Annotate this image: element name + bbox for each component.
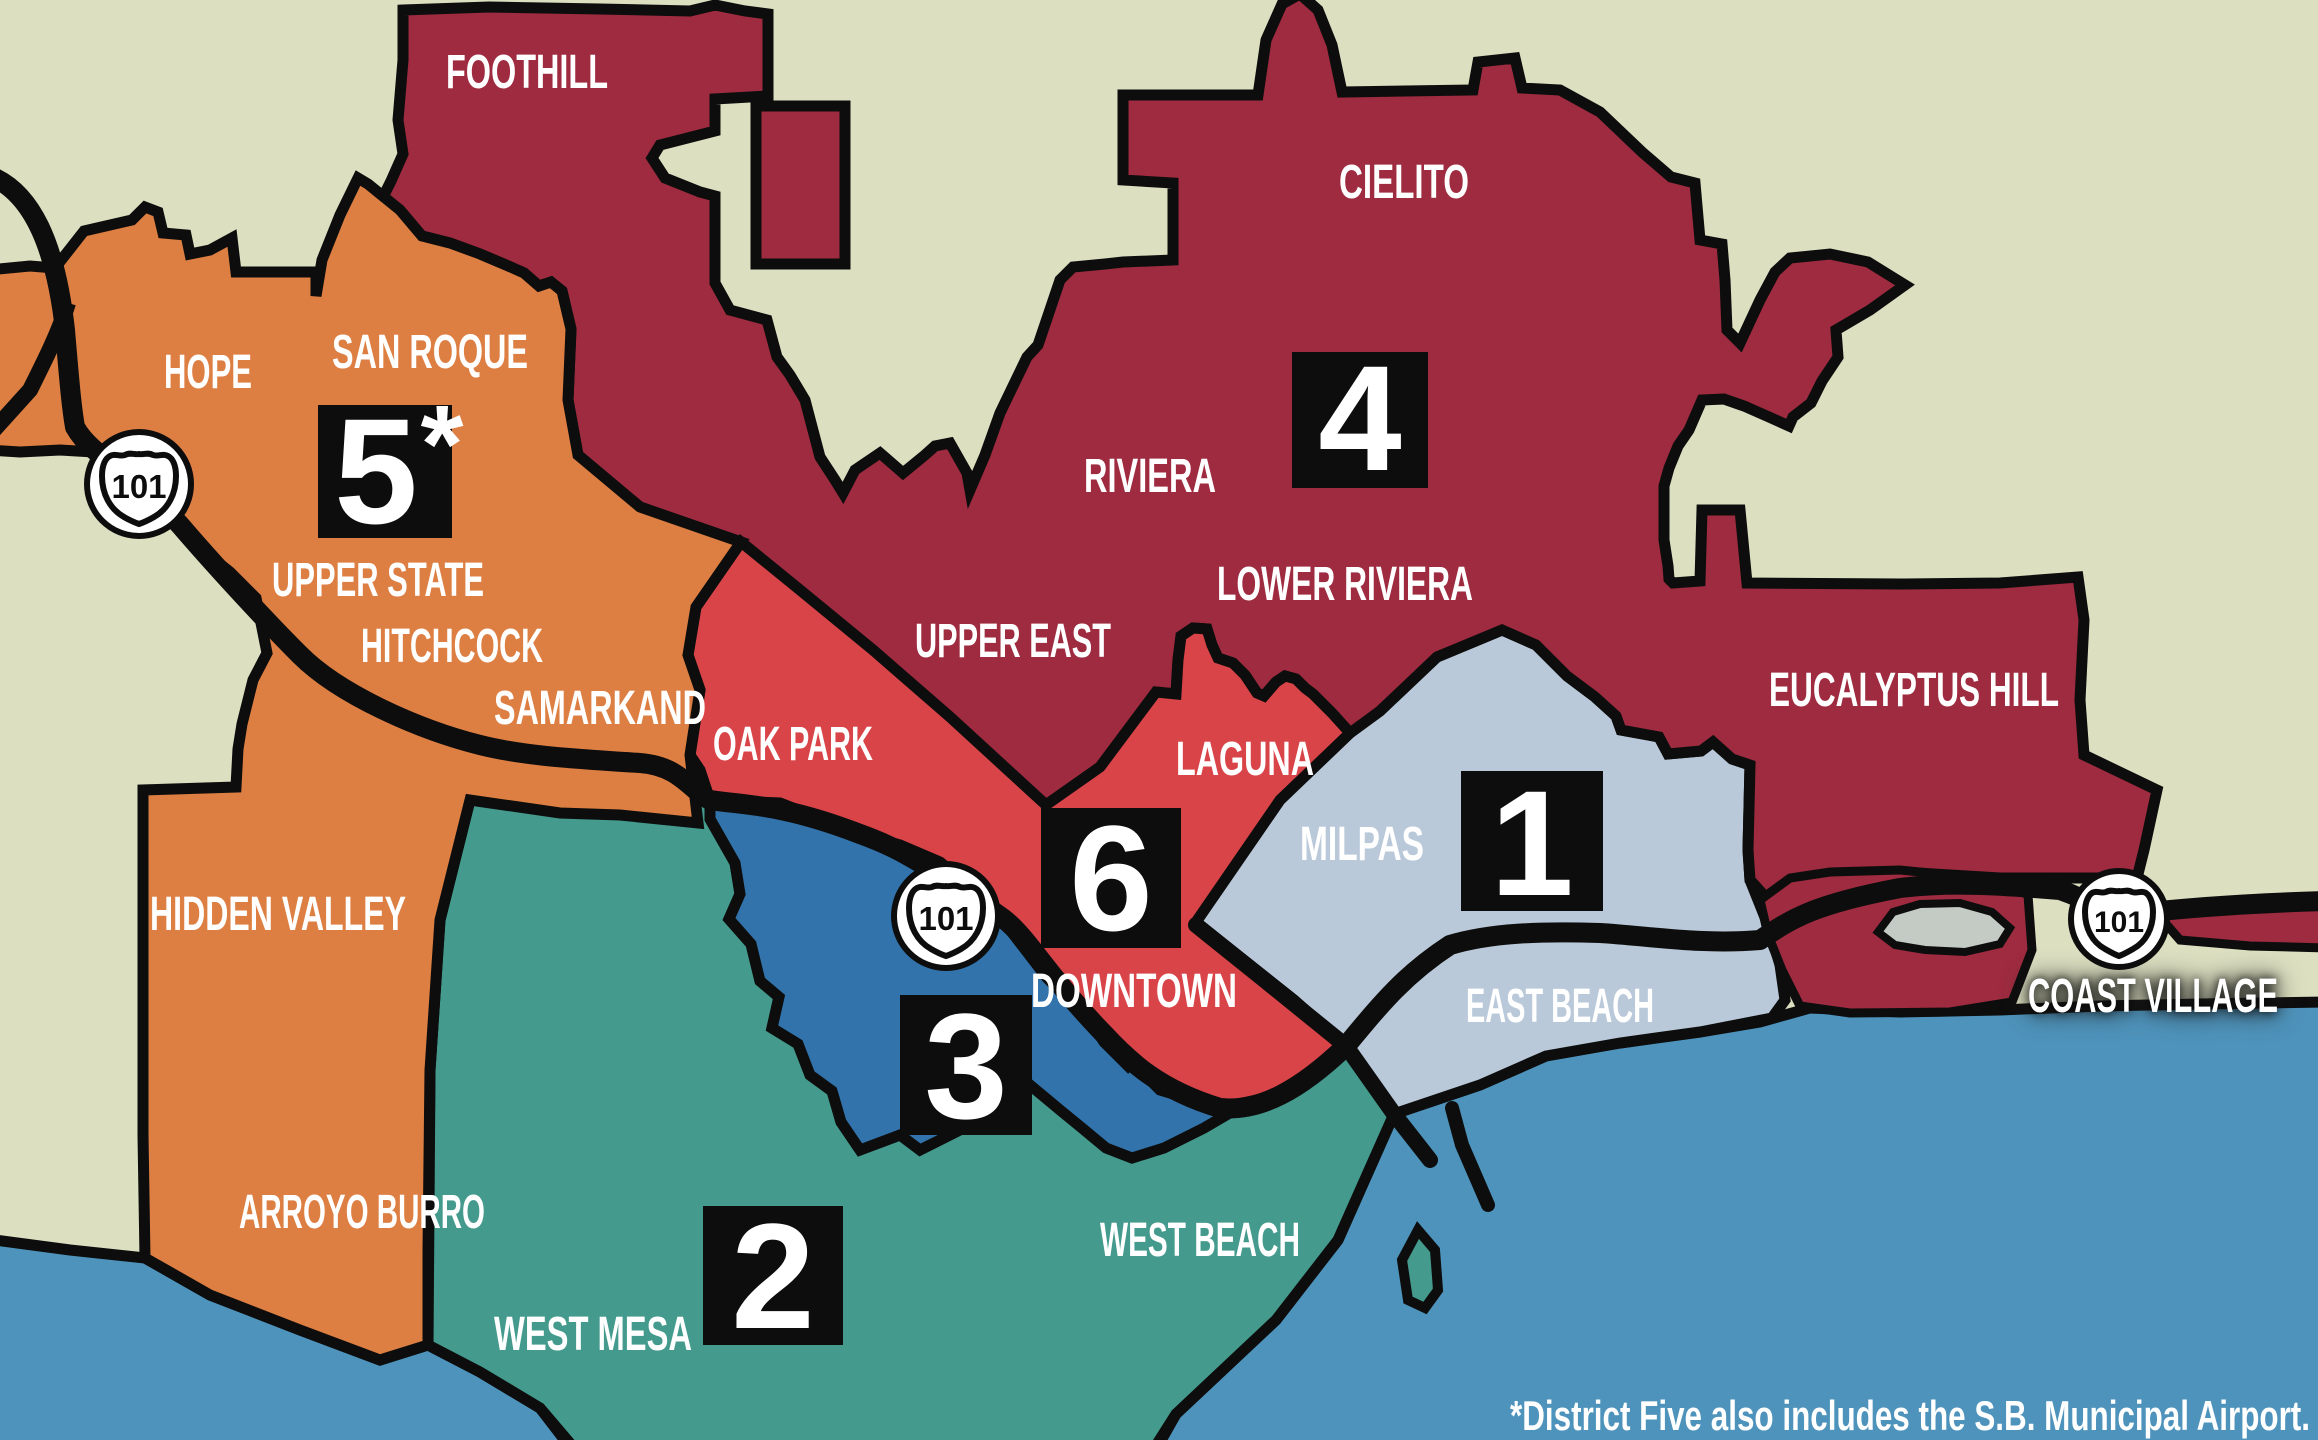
svg-text:101: 101 bbox=[918, 900, 973, 937]
svg-text:SAN ROQUE: SAN ROQUE bbox=[332, 326, 528, 379]
svg-text:LOWER RIVIERA: LOWER RIVIERA bbox=[1217, 558, 1473, 611]
svg-text:101: 101 bbox=[2094, 906, 2144, 939]
svg-text:1: 1 bbox=[1490, 759, 1573, 927]
svg-text:*: * bbox=[421, 383, 464, 506]
svg-text:5: 5 bbox=[334, 387, 417, 555]
svg-text:OAK PARK: OAK PARK bbox=[713, 718, 873, 771]
svg-text:HOPE: HOPE bbox=[164, 346, 252, 399]
svg-text:LAGUNA: LAGUNA bbox=[1176, 733, 1314, 786]
svg-text:HIDDEN VALLEY: HIDDEN VALLEY bbox=[150, 888, 406, 941]
svg-text:WEST MESA: WEST MESA bbox=[494, 1308, 692, 1361]
svg-text:101: 101 bbox=[111, 468, 166, 505]
svg-text:WEST BEACH: WEST BEACH bbox=[1100, 1214, 1300, 1267]
svg-text:MILPAS: MILPAS bbox=[1300, 818, 1424, 871]
svg-text:RIVIERA: RIVIERA bbox=[1084, 450, 1216, 503]
svg-text:UPPER STATE: UPPER STATE bbox=[272, 554, 484, 607]
svg-text:3: 3 bbox=[924, 982, 1007, 1150]
svg-text:EAST BEACH: EAST BEACH bbox=[1466, 980, 1654, 1033]
svg-text:*District Five also includes t: *District Five also includes the S.B. Mu… bbox=[1510, 1392, 2310, 1439]
svg-text:UPPER EAST: UPPER EAST bbox=[915, 615, 1111, 668]
svg-text:HITCHCOCK: HITCHCOCK bbox=[361, 620, 543, 673]
svg-text:6: 6 bbox=[1069, 794, 1152, 962]
svg-text:EUCALYPTUS HILL: EUCALYPTUS HILL bbox=[1769, 664, 2059, 717]
svg-text:SAMARKAND: SAMARKAND bbox=[494, 682, 706, 735]
svg-text:DOWNTOWN: DOWNTOWN bbox=[1031, 965, 1237, 1018]
svg-text:COAST VILLAGE: COAST VILLAGE bbox=[2028, 970, 2278, 1023]
svg-text:4: 4 bbox=[1318, 334, 1401, 502]
svg-text:CIELITO: CIELITO bbox=[1339, 156, 1469, 209]
svg-text:ARROYO BURRO: ARROYO BURRO bbox=[239, 1186, 485, 1239]
svg-text:2: 2 bbox=[731, 1192, 814, 1360]
svg-text:FOOTHILL: FOOTHILL bbox=[446, 46, 608, 99]
